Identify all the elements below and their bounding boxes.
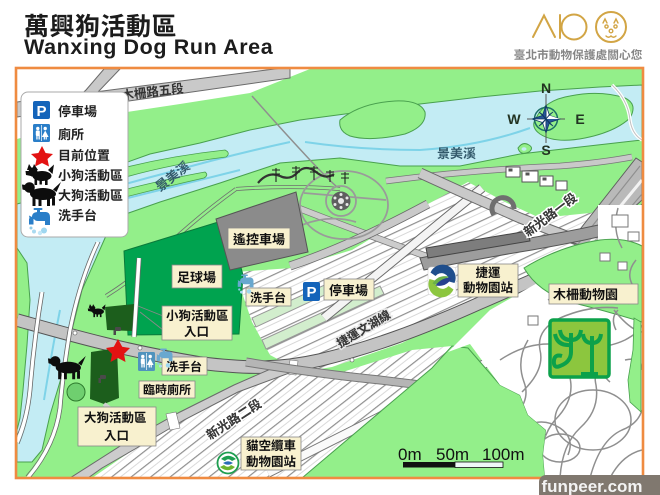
svg-text:Wanxing Dog Run Area: Wanxing Dog Run Area: [24, 35, 274, 59]
svg-text:0m: 0m: [398, 445, 422, 464]
svg-text:E: E: [575, 111, 584, 127]
svg-text:P: P: [306, 284, 316, 301]
svg-text:N: N: [541, 80, 551, 96]
svg-text:50m: 50m: [436, 445, 469, 464]
svg-text:funpeer.com: funpeer.com: [541, 477, 642, 495]
svg-text:W: W: [507, 111, 521, 127]
svg-text:P: P: [36, 103, 46, 120]
svg-text:100m: 100m: [482, 445, 525, 464]
svg-text:S: S: [541, 142, 550, 158]
